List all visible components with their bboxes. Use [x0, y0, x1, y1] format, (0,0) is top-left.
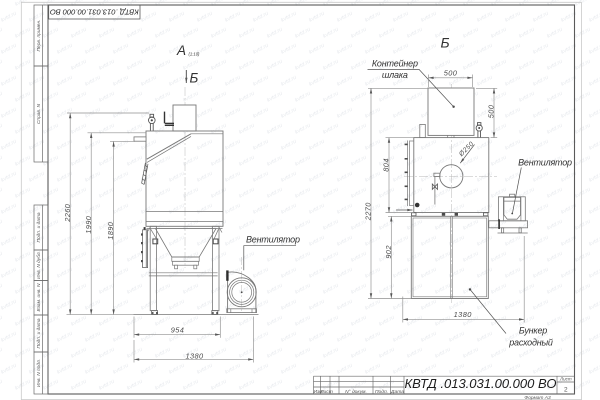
svg-text:Бункер: Бункер: [519, 325, 547, 335]
svg-text:КВТД .013.031.00.000 ВО: КВТД .013.031.00.000 ВО: [50, 8, 139, 17]
svg-text:шлака: шлака: [382, 70, 408, 80]
svg-text:Перв. примен.: Перв. примен.: [36, 20, 42, 52]
svg-text:расходный: расходный: [508, 337, 553, 347]
svg-text:Дата: Дата: [390, 389, 404, 395]
svg-text:500: 500: [444, 69, 458, 78]
svg-text:804: 804: [382, 158, 391, 172]
svg-text:Взам. инв. N: Взам. инв. N: [36, 283, 42, 311]
svg-text:500: 500: [487, 104, 496, 118]
svg-text:Б: Б: [190, 71, 199, 86]
svg-text:Лист: Лист: [319, 389, 333, 395]
svg-text:2270: 2270: [364, 202, 373, 222]
svg-text:Справ. N: Справ. N: [36, 103, 42, 124]
svg-text:902: 902: [384, 245, 393, 259]
svg-text:1990: 1990: [84, 215, 93, 234]
svg-text:2: 2: [564, 387, 568, 394]
svg-text:КВТД .013.031.00.000 ВО: КВТД .013.031.00.000 ВО: [405, 376, 557, 391]
svg-text:Инв. N дубл.: Инв. N дубл.: [36, 251, 42, 279]
svg-text:2260: 2260: [63, 203, 72, 223]
svg-text:Контейнер: Контейнер: [372, 58, 418, 68]
svg-text:Вентилятор: Вентилятор: [518, 157, 572, 167]
svg-text:1380: 1380: [454, 310, 473, 319]
svg-text:А: А: [176, 43, 186, 58]
svg-text:Подп.: Подп.: [375, 389, 388, 395]
svg-text:N° докум.: N° докум.: [345, 389, 367, 395]
svg-text:Вентилятор: Вентилятор: [246, 235, 300, 245]
svg-text:1890: 1890: [106, 221, 115, 240]
svg-text:Б: Б: [441, 35, 450, 51]
svg-text:Подп. и дата: Подп. и дата: [36, 212, 42, 242]
svg-text:Подп. и дата: Подп. и дата: [36, 318, 42, 348]
svg-text:1380: 1380: [185, 351, 204, 360]
svg-text:954: 954: [171, 326, 185, 335]
svg-text:Инв. N подл.: Инв. N подл.: [36, 359, 42, 387]
svg-text:(1:10): (1:10): [189, 52, 201, 57]
svg-text:Формат А3: Формат А3: [524, 395, 551, 400]
svg-text:Лист: Лист: [559, 377, 572, 382]
